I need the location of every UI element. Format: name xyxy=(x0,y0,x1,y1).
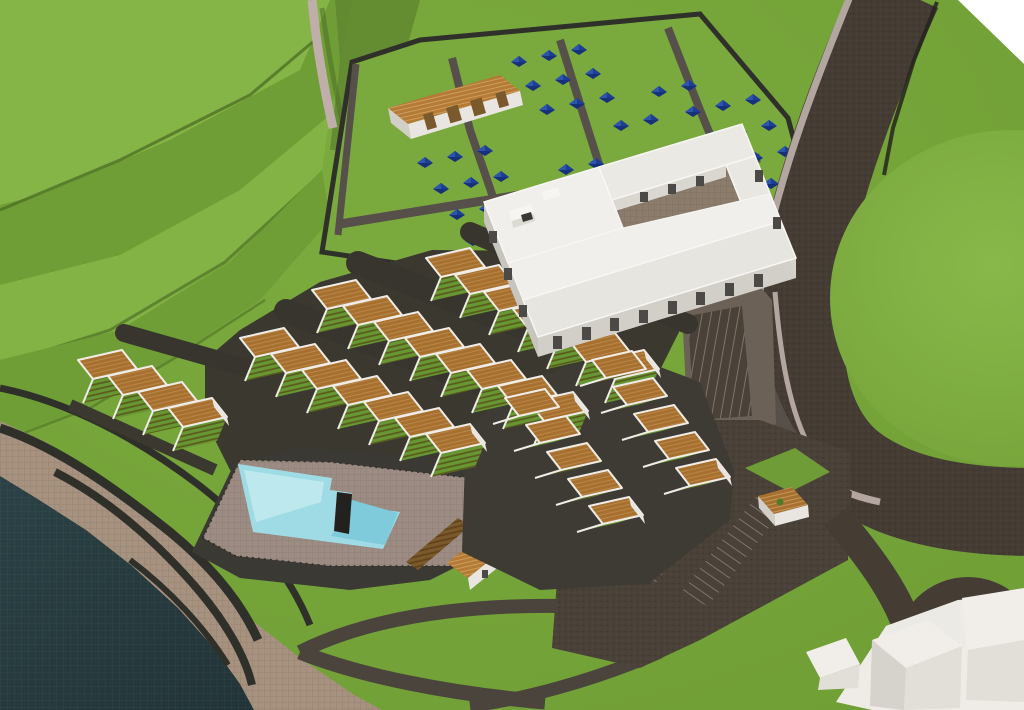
pool-feature-wall xyxy=(334,492,352,534)
pool-bar-window xyxy=(482,570,488,578)
massing-block-front xyxy=(966,640,1024,702)
courtyard-window xyxy=(696,176,704,186)
courtyard-window xyxy=(640,192,648,202)
massing-block-top xyxy=(962,588,1024,650)
kiosk-patio-plant xyxy=(777,499,784,506)
courtyard-window xyxy=(668,184,676,194)
site-plan-render xyxy=(0,0,1024,710)
